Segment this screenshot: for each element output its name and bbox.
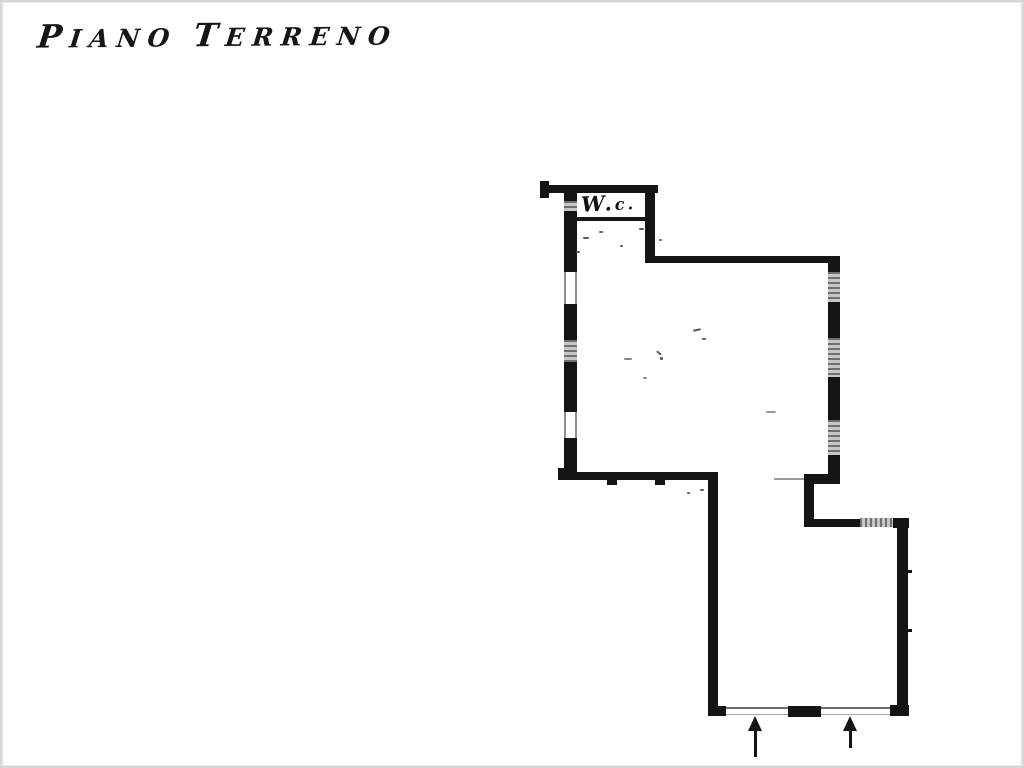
wall-stub: [607, 480, 617, 485]
wall-segment: [788, 706, 821, 717]
window-hatched: [860, 518, 893, 527]
door-opening: [821, 707, 890, 715]
window-hatched: [564, 201, 577, 211]
window-hatched: [828, 272, 840, 302]
wall-segment: [708, 474, 718, 716]
wall-segment: [564, 304, 577, 340]
wall-segment: [708, 706, 726, 716]
wall-segment: [804, 519, 860, 527]
scan-speck: [766, 411, 776, 413]
door-opening: [726, 707, 788, 715]
wall-segment: [558, 472, 718, 480]
scan-speck: [659, 239, 662, 241]
arrow-stem: [849, 729, 852, 748]
page-title: PianoTerreno: [36, 14, 417, 55]
window-hatched: [828, 338, 840, 377]
scan-speck: [656, 350, 662, 355]
wall-corner: [890, 705, 909, 716]
page-title-word: Terreno: [192, 15, 401, 55]
wall-segment: [645, 256, 838, 263]
scanned-floor-plan-page: PianoTerreno W.c.: [0, 0, 1024, 768]
window-hatched: [564, 340, 577, 362]
threshold-line: [774, 478, 807, 480]
scan-speck: [660, 357, 663, 360]
scan-speck: [643, 377, 647, 379]
wc-room-partition-wall: [574, 217, 646, 221]
scan-speck: [693, 328, 701, 332]
wall-segment: [564, 211, 577, 272]
scan-speck: [687, 492, 690, 494]
scan-speck: [576, 251, 580, 253]
wall-segment: [564, 189, 577, 201]
scan-speck: [639, 228, 644, 230]
scan-speck: [700, 489, 704, 491]
wall-segment: [828, 256, 840, 272]
wall-segment: [828, 377, 840, 420]
wall-stub: [908, 570, 912, 573]
scan-speck: [620, 245, 623, 247]
wall-segment: [897, 518, 908, 716]
scan-speck: [702, 338, 706, 340]
window-opening: [564, 272, 577, 304]
window-hatched: [828, 420, 840, 455]
arrow-stem: [754, 729, 757, 757]
wall-stub: [655, 480, 665, 485]
wall-segment: [564, 362, 577, 412]
scan-speck: [599, 231, 603, 233]
page-title-word: Piano: [36, 16, 180, 55]
wall-stub: [908, 629, 912, 632]
wc-room-label: W.c.: [580, 188, 651, 217]
window-opening: [564, 412, 577, 438]
scan-speck: [583, 237, 589, 239]
scan-speck: [624, 358, 632, 360]
wall-segment: [828, 302, 840, 338]
